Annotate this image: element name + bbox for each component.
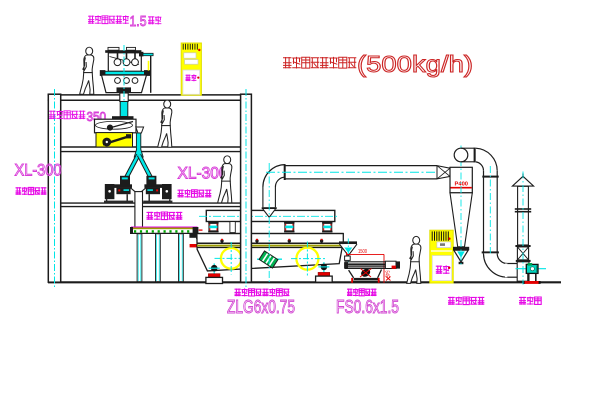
svg-text:XL-300: XL-300 [15,161,62,180]
svg-text:1.5: 1.5 [130,13,147,30]
svg-text:(500kg/h): (500kg/h) [357,51,473,77]
svg-text:ZLG6x0.75: ZLG6x0.75 [227,297,295,317]
svg-text:XL-300: XL-300 [178,164,228,183]
svg-text:1500: 1500 [358,249,367,255]
svg-text:FS0.6x1.5: FS0.6x1.5 [336,297,399,317]
